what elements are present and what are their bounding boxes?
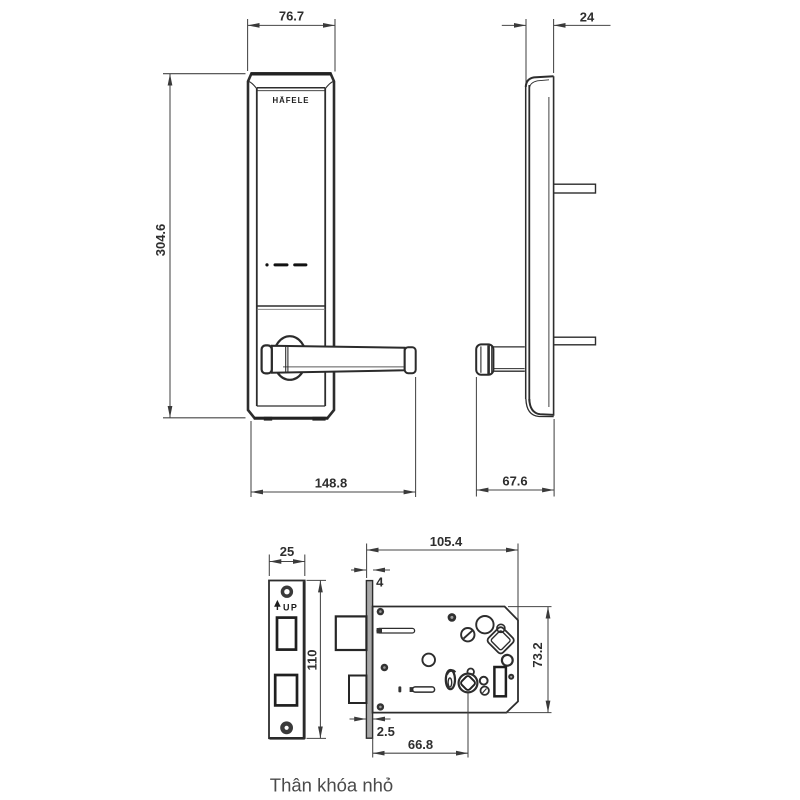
svg-text:304.6: 304.6: [153, 224, 168, 257]
svg-text:25: 25: [280, 544, 294, 559]
svg-text:67.6: 67.6: [502, 474, 527, 489]
svg-text:66.8: 66.8: [408, 737, 433, 752]
svg-text:105.4: 105.4: [430, 534, 463, 549]
svg-text:HÄFELE: HÄFELE: [273, 96, 310, 105]
svg-text:110: 110: [305, 650, 320, 671]
svg-text:148.8: 148.8: [315, 476, 348, 491]
svg-text:2.5: 2.5: [377, 724, 395, 739]
svg-text:73.2: 73.2: [530, 642, 545, 667]
svg-text:4: 4: [376, 575, 384, 590]
svg-text:Thân khóa nhỏ: Thân khóa nhỏ: [270, 775, 393, 796]
svg-text:76.7: 76.7: [279, 9, 304, 24]
svg-text:24: 24: [580, 10, 595, 25]
svg-text:UP: UP: [283, 603, 298, 613]
